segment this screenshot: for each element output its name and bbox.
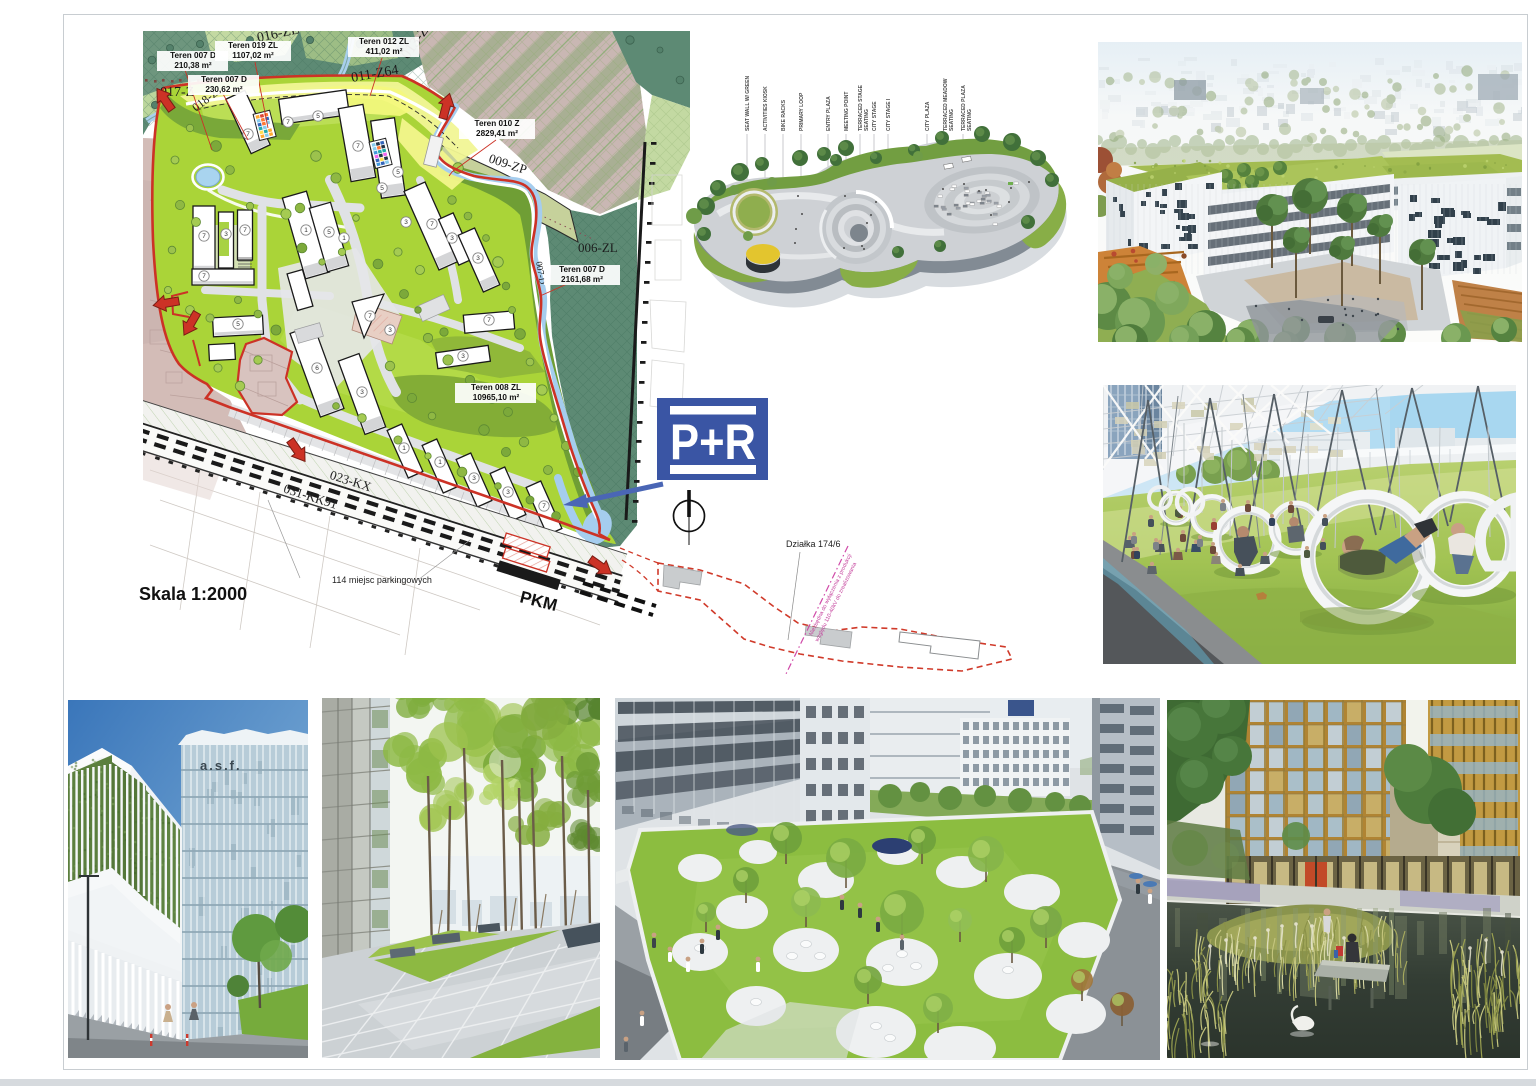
svg-text:3: 3 <box>404 219 408 226</box>
svg-text:3: 3 <box>476 255 480 262</box>
svg-text:5: 5 <box>380 185 384 192</box>
svg-text:CITY STAGE: CITY STAGE <box>872 101 878 131</box>
svg-text:Teren 008 ZL: Teren 008 ZL <box>471 383 521 392</box>
svg-text:10965,10 m²: 10965,10 m² <box>473 393 520 402</box>
svg-text:3: 3 <box>360 389 364 396</box>
svg-text:1107,02 m²: 1107,02 m² <box>232 51 274 60</box>
svg-text:a.s.f.: a.s.f. <box>200 758 242 773</box>
svg-text:2161,68 m²: 2161,68 m² <box>561 275 603 284</box>
svg-text:7: 7 <box>487 317 491 324</box>
svg-text:3: 3 <box>506 489 510 496</box>
svg-text:ACTIVITIES KIOSK: ACTIVITIES KIOSK <box>763 86 769 131</box>
svg-text:411,02 m²: 411,02 m² <box>366 47 403 56</box>
svg-text:1: 1 <box>342 235 346 242</box>
svg-text:5: 5 <box>316 113 320 120</box>
svg-text:5: 5 <box>327 229 331 236</box>
svg-text:7: 7 <box>202 233 206 240</box>
svg-text:7: 7 <box>368 313 372 320</box>
svg-text:SEATING: SEATING <box>967 109 973 131</box>
svg-text:Skala 1:2000: Skala 1:2000 <box>139 584 247 604</box>
svg-text:MEETING POINT: MEETING POINT <box>844 92 850 131</box>
svg-text:210,38 m²: 210,38 m² <box>174 61 212 70</box>
svg-text:Teren 010 Z: Teren 010 Z <box>475 119 520 128</box>
svg-text:ENTRY PLAZA: ENTRY PLAZA <box>826 96 832 131</box>
svg-text:Teren 019 ZL: Teren 019 ZL <box>228 41 278 50</box>
svg-text:5: 5 <box>236 321 240 328</box>
svg-text:230,62 m²: 230,62 m² <box>205 85 243 94</box>
svg-text:2829,41 m²: 2829,41 m² <box>476 129 518 138</box>
svg-text:PRIMARY LOOP: PRIMARY LOOP <box>799 92 805 131</box>
svg-text:7: 7 <box>356 143 360 150</box>
svg-text:3: 3 <box>472 475 476 482</box>
svg-text:SEATING: SEATING <box>949 109 955 131</box>
svg-text:CITY PLAZA: CITY PLAZA <box>925 101 931 131</box>
svg-text:Teren 007 D: Teren 007 D <box>170 51 216 60</box>
svg-text:7: 7 <box>286 119 290 126</box>
svg-text:Teren 007 D: Teren 007 D <box>559 265 605 274</box>
svg-text:006-ZL: 006-ZL <box>578 240 618 255</box>
svg-text:114 miejsc parkingowych: 114 miejsc parkingowych <box>332 575 432 585</box>
svg-text:SEATING: SEATING <box>864 109 870 131</box>
svg-text:3: 3 <box>388 327 392 334</box>
svg-text:7: 7 <box>542 503 546 510</box>
svg-text:5: 5 <box>396 169 400 176</box>
svg-text:Teren 012 ZL: Teren 012 ZL <box>359 37 409 46</box>
svg-text:Działka 174/6: Działka 174/6 <box>786 539 841 549</box>
svg-text:BIKE RACKS: BIKE RACKS <box>781 99 787 131</box>
svg-text:SEAT WALL W/ GREEN: SEAT WALL W/ GREEN <box>745 76 751 131</box>
svg-text:7: 7 <box>430 221 434 228</box>
svg-text:7: 7 <box>202 273 206 280</box>
svg-text:6: 6 <box>315 365 319 372</box>
svg-text:1: 1 <box>402 445 406 452</box>
svg-text:1: 1 <box>304 227 308 234</box>
svg-text:Teren 007 D: Teren 007 D <box>201 75 247 84</box>
svg-text:3: 3 <box>461 353 465 360</box>
svg-text:1: 1 <box>438 459 442 466</box>
svg-text:3: 3 <box>450 235 454 242</box>
svg-text:7: 7 <box>243 227 247 234</box>
svg-text:CITY STAGE I: CITY STAGE I <box>886 98 892 131</box>
svg-text:3: 3 <box>224 231 228 238</box>
svg-text:P+R: P+R <box>670 414 756 470</box>
